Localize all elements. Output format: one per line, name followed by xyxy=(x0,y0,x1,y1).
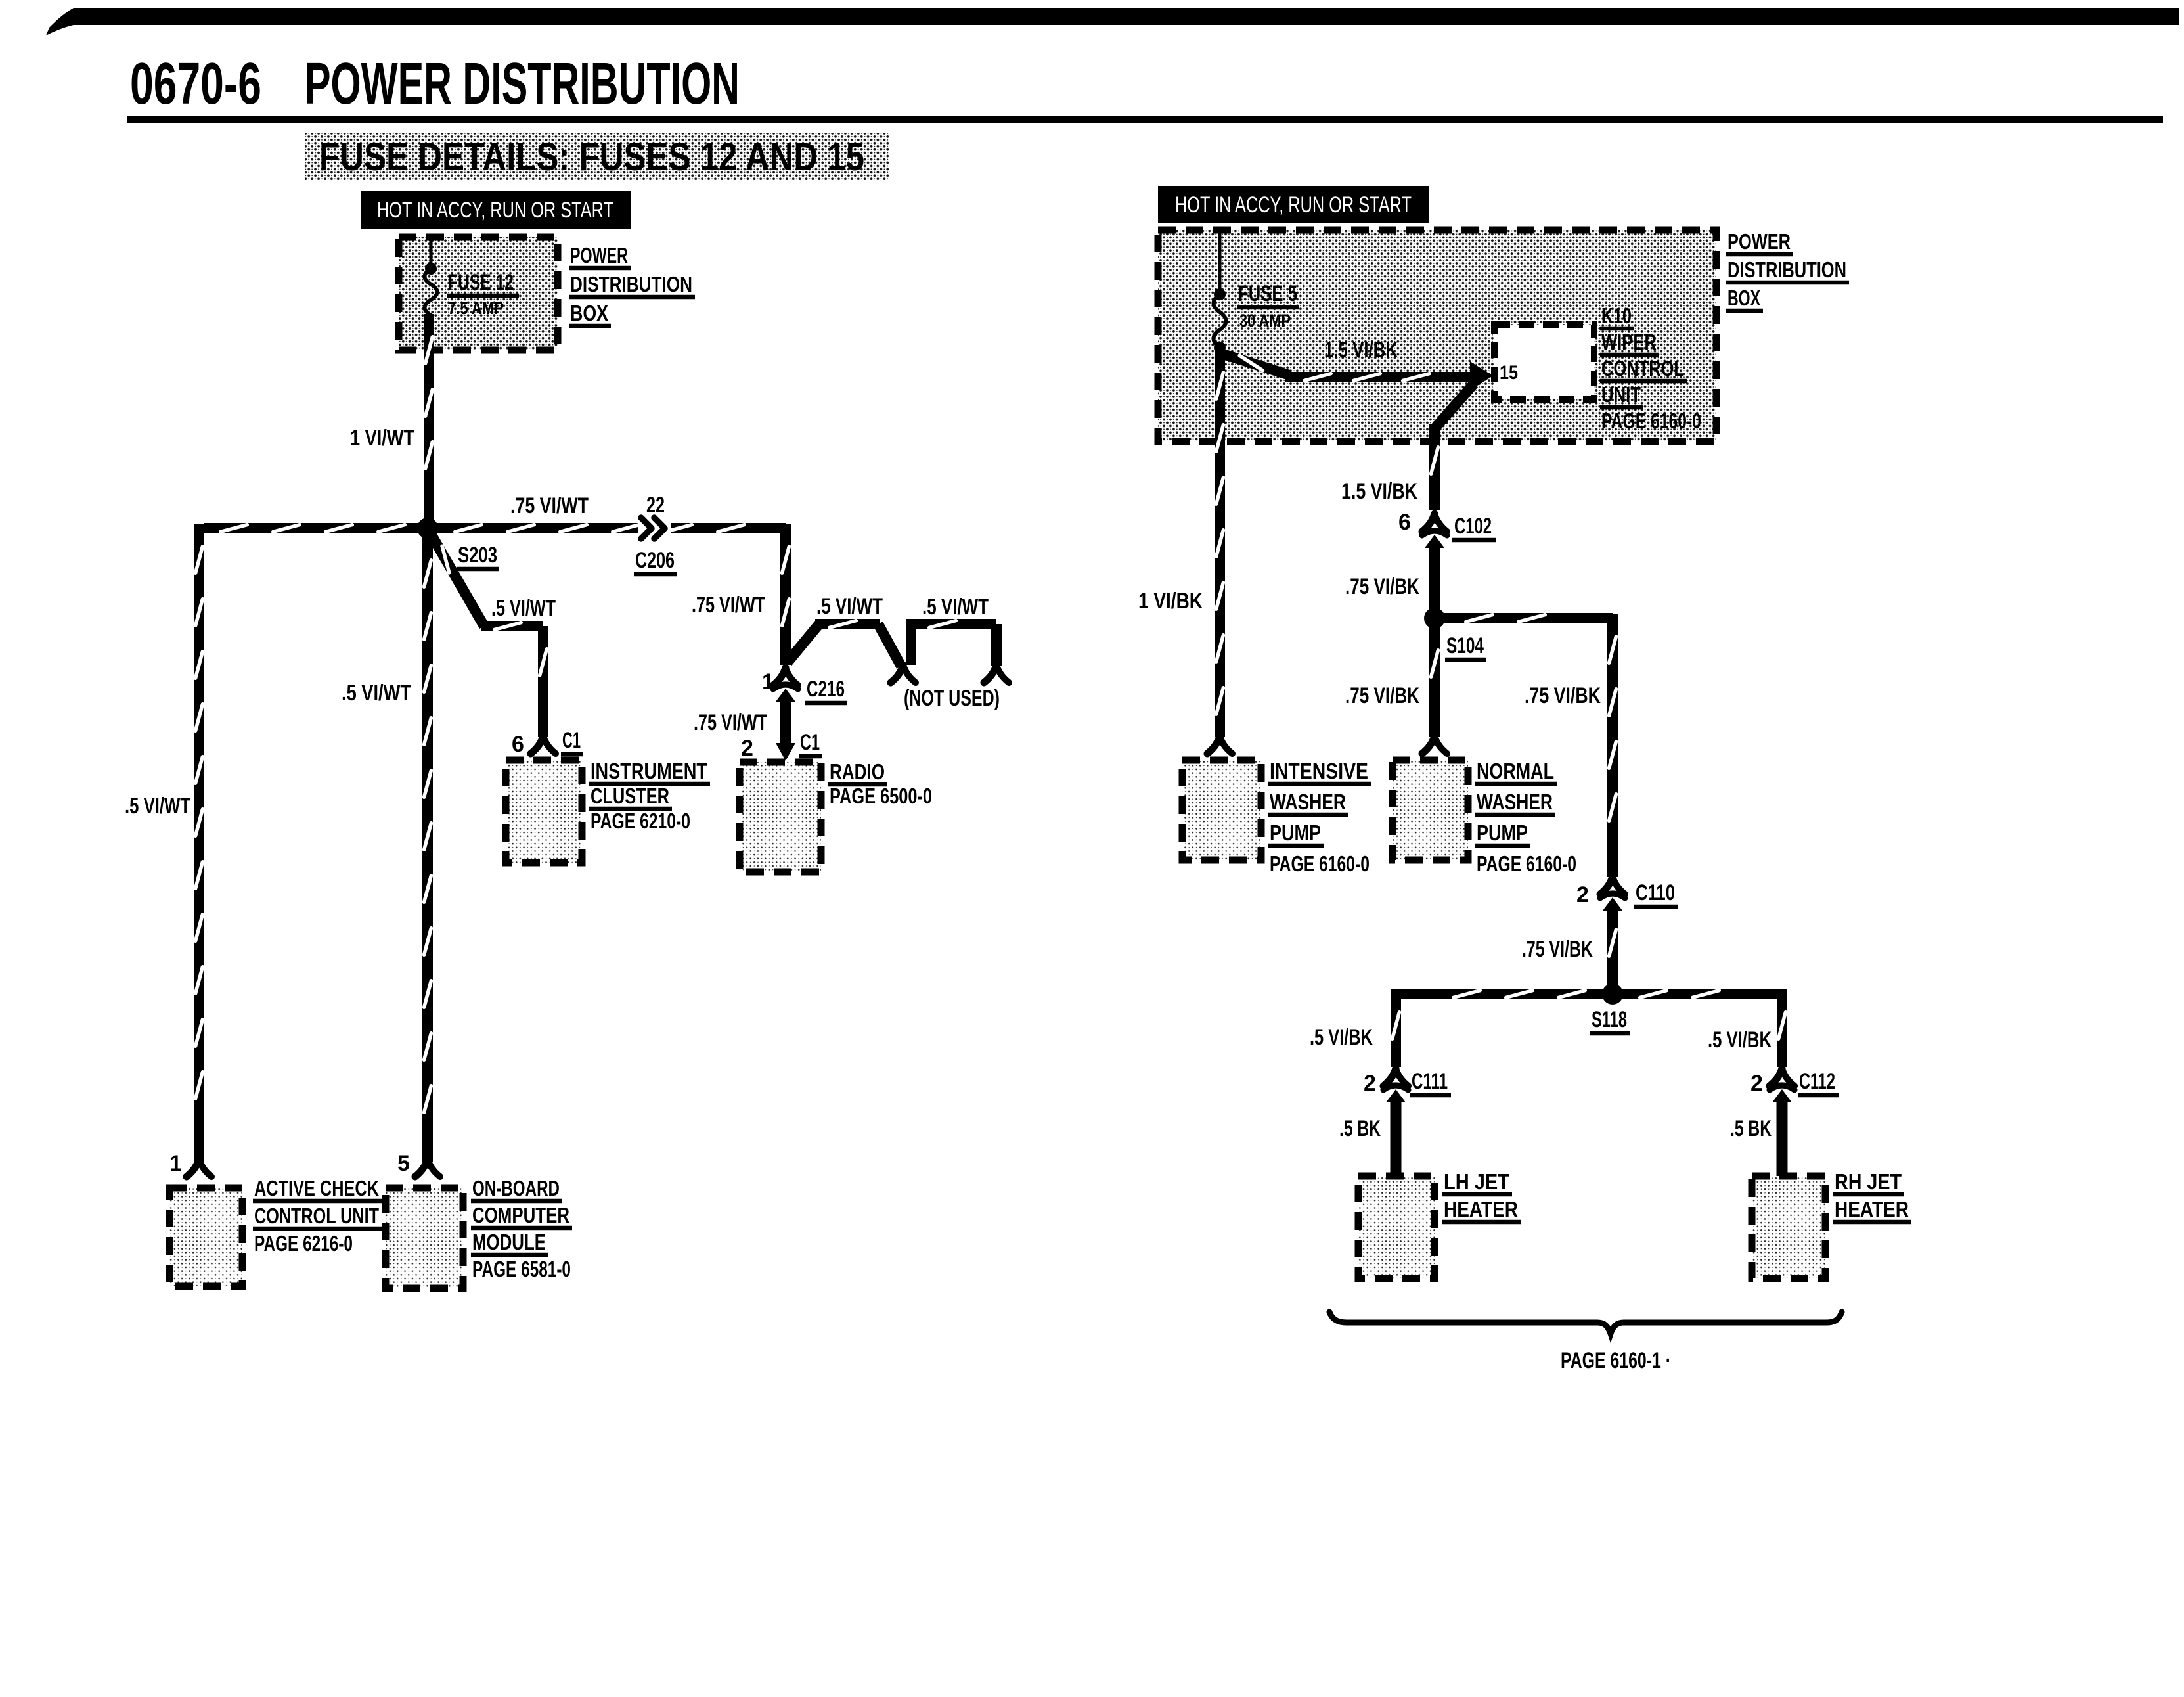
svg-text:22: 22 xyxy=(646,493,665,518)
svg-text:C206: C206 xyxy=(635,548,675,573)
svg-text:ACTIVE CHECK: ACTIVE CHECK xyxy=(254,1176,379,1200)
svg-text:1: 1 xyxy=(762,669,774,694)
svg-text:WASHER: WASHER xyxy=(1270,790,1346,814)
svg-text:WASHER: WASHER xyxy=(1477,790,1553,814)
svg-text:POWER: POWER xyxy=(1727,229,1791,254)
svg-text:30 AMP: 30 AMP xyxy=(1239,311,1291,330)
svg-text:2: 2 xyxy=(1750,1071,1763,1096)
svg-text:.5 VI/BK: .5 VI/BK xyxy=(1708,1028,1772,1052)
svg-text:HOT IN ACCY, RUN OR START: HOT IN ACCY, RUN OR START xyxy=(377,198,613,223)
svg-text:.75 VI/BK: .75 VI/BK xyxy=(1522,937,1593,962)
svg-text:S203: S203 xyxy=(458,543,497,568)
svg-text:CLUSTER: CLUSTER xyxy=(591,784,669,808)
svg-text:DISTRIBUTION: DISTRIBUTION xyxy=(570,272,692,296)
svg-text:BOX: BOX xyxy=(1727,286,1760,310)
svg-text:LH JET: LH JET xyxy=(1444,1169,1509,1194)
svg-text:UNIT: UNIT xyxy=(1601,382,1641,407)
svg-text:2: 2 xyxy=(741,736,753,761)
svg-text:HEATER: HEATER xyxy=(1835,1197,1909,1221)
svg-text:1: 1 xyxy=(169,1151,182,1176)
svg-text:NORMAL: NORMAL xyxy=(1477,759,1554,783)
svg-text:COMPUTER: COMPUTER xyxy=(472,1203,569,1227)
svg-text:PAGE 6160-0: PAGE 6160-0 xyxy=(1270,851,1370,876)
svg-text:1.5 VI/BK: 1.5 VI/BK xyxy=(1324,338,1398,363)
svg-text:RH JET: RH JET xyxy=(1835,1169,1902,1194)
svg-text:S118: S118 xyxy=(1592,1007,1627,1032)
svg-text:FUSE 12: FUSE 12 xyxy=(448,270,514,295)
svg-text:5: 5 xyxy=(397,1151,410,1176)
svg-text:ON-BOARD: ON-BOARD xyxy=(472,1176,560,1200)
svg-text:.75 VI/BK: .75 VI/BK xyxy=(1525,683,1601,708)
svg-text:.5 VI/WT: .5 VI/WT xyxy=(125,794,190,819)
svg-text:PAGE 6581-0: PAGE 6581-0 xyxy=(472,1257,571,1281)
svg-text:1.5 VI/BK: 1.5 VI/BK xyxy=(1341,479,1417,504)
svg-text:PAGE 6160-1 ·: PAGE 6160-1 · xyxy=(1561,1348,1671,1373)
svg-text:DISTRIBUTION: DISTRIBUTION xyxy=(1727,258,1846,282)
svg-text:POWER: POWER xyxy=(570,243,628,267)
svg-text:.75 VI/BK: .75 VI/BK xyxy=(1345,683,1419,708)
svg-text:INTENSIVE: INTENSIVE xyxy=(1270,759,1368,783)
svg-text:K10: K10 xyxy=(1601,304,1632,328)
svg-text:HOT IN ACCY, RUN OR START: HOT IN ACCY, RUN OR START xyxy=(1175,192,1412,217)
svg-text:PUMP: PUMP xyxy=(1477,821,1528,845)
svg-text:6: 6 xyxy=(512,732,524,757)
svg-text:15: 15 xyxy=(1500,362,1518,384)
svg-text:.75 VI/WT: .75 VI/WT xyxy=(510,493,589,518)
svg-text:(NOT USED): (NOT USED) xyxy=(904,686,1000,711)
svg-text:C1: C1 xyxy=(800,730,820,755)
svg-text:1 VI/BK: 1 VI/BK xyxy=(1138,589,1203,614)
svg-text:CONTROL: CONTROL xyxy=(1601,356,1684,380)
svg-text:FUSE DETAILS: FUSES 12 AND 15: FUSE DETAILS: FUSES 12 AND 15 xyxy=(319,135,864,179)
svg-text:WIPER: WIPER xyxy=(1601,330,1657,354)
svg-text:1 VI/WT: 1 VI/WT xyxy=(350,426,414,451)
svg-text:C112: C112 xyxy=(1799,1069,1835,1094)
svg-text:PAGE 6500-0: PAGE 6500-0 xyxy=(830,784,932,808)
svg-text:PAGE 6160-0: PAGE 6160-0 xyxy=(1477,851,1576,876)
svg-text:INSTRUMENT: INSTRUMENT xyxy=(591,759,707,783)
svg-text:.5 VI/BK: .5 VI/BK xyxy=(1310,1025,1373,1050)
svg-text:PAGE 6210-0: PAGE 6210-0 xyxy=(591,809,690,833)
svg-text:C110: C110 xyxy=(1636,880,1675,905)
svg-text:PAGE 6216-0: PAGE 6216-0 xyxy=(254,1231,353,1256)
svg-text:7.5 AMP: 7.5 AMP xyxy=(448,298,504,318)
svg-text:S104: S104 xyxy=(1446,633,1484,658)
svg-text:POWER DISTRIBUTION: POWER DISTRIBUTION xyxy=(305,51,740,117)
svg-text:C216: C216 xyxy=(807,677,845,702)
svg-text:FUSE 5: FUSE 5 xyxy=(1238,281,1297,306)
svg-text:2: 2 xyxy=(1576,882,1589,907)
svg-text:C102: C102 xyxy=(1454,514,1492,539)
svg-text:.5 VI/WT: .5 VI/WT xyxy=(491,596,556,621)
svg-text:CONTROL UNIT: CONTROL UNIT xyxy=(254,1204,379,1228)
svg-text:.5 BK: .5 BK xyxy=(1339,1116,1381,1141)
svg-text:C1: C1 xyxy=(562,728,581,753)
svg-text:2: 2 xyxy=(1364,1071,1376,1096)
svg-text:MODULE: MODULE xyxy=(472,1230,546,1254)
svg-text:.5 BK: .5 BK xyxy=(1730,1116,1772,1141)
svg-text:BOX: BOX xyxy=(570,301,608,325)
svg-text:PUMP: PUMP xyxy=(1270,821,1321,845)
svg-text:.75 VI/BK: .75 VI/BK xyxy=(1345,574,1419,599)
svg-text:6: 6 xyxy=(1398,510,1411,535)
svg-text:RADIO: RADIO xyxy=(830,759,885,784)
svg-text:.5 VI/WT: .5 VI/WT xyxy=(922,595,989,620)
svg-text:.75 VI/WT: .75 VI/WT xyxy=(694,710,767,735)
svg-text:PAGE 6160-0: PAGE 6160-0 xyxy=(1601,409,1701,433)
svg-text:.75 VI/WT: .75 VI/WT xyxy=(692,593,765,618)
svg-text:HEATER: HEATER xyxy=(1444,1197,1518,1221)
svg-text:0670-6: 0670-6 xyxy=(130,51,261,117)
svg-text:.5 VI/WT: .5 VI/WT xyxy=(342,681,411,706)
svg-text:C111: C111 xyxy=(1412,1069,1448,1094)
svg-text:.5 VI/WT: .5 VI/WT xyxy=(816,594,883,619)
